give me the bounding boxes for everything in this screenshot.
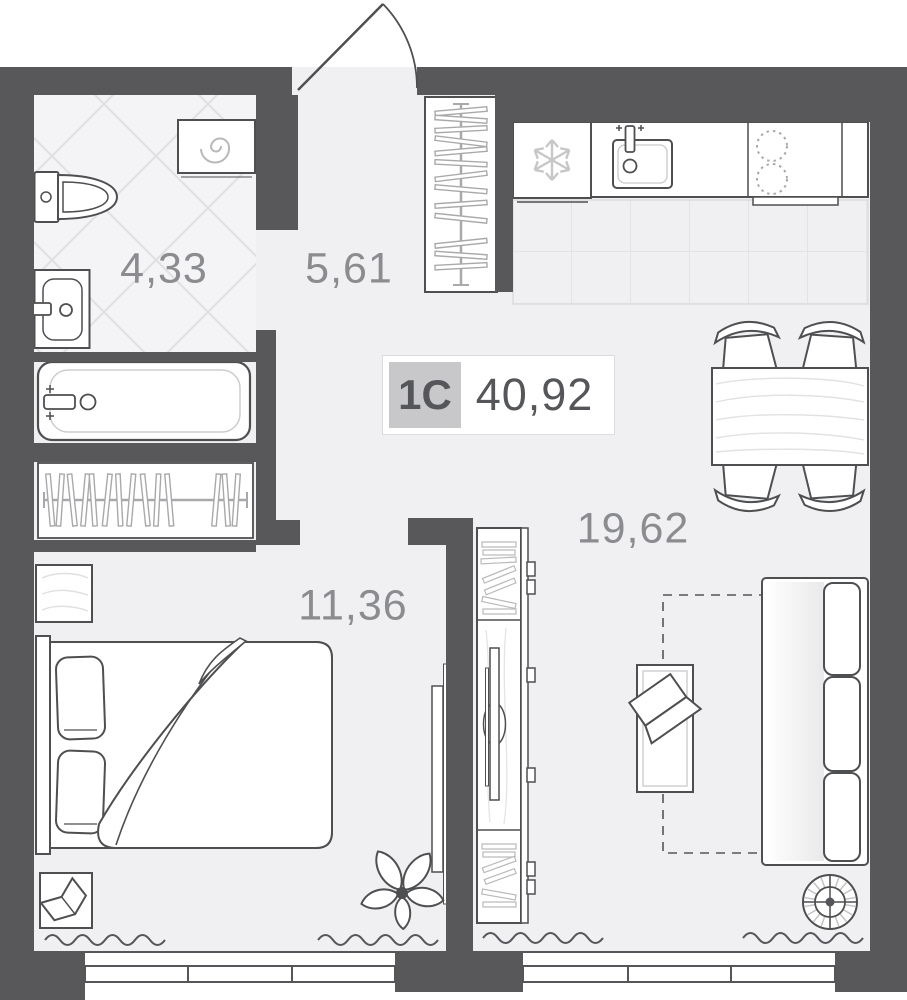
living-window xyxy=(523,966,835,982)
area-label-bedroom: 11,36 xyxy=(298,582,407,631)
unit-type-badge: 1C xyxy=(389,362,461,428)
area-label-bathroom: 4,33 xyxy=(120,245,208,294)
wall-bedroom-stub-left xyxy=(256,520,300,545)
total-area-value: 40,92 xyxy=(461,362,608,428)
wall-bottom-left xyxy=(0,951,85,1000)
pillow xyxy=(56,656,106,740)
bedroom-window xyxy=(85,966,395,982)
bedroom-tv xyxy=(432,664,447,904)
wall-bedroom-stub-right xyxy=(408,518,473,545)
entry-threshold xyxy=(292,67,417,95)
wall-wardrobe-separator xyxy=(34,443,256,462)
kitchen-tiles xyxy=(513,200,868,304)
wall-top-left xyxy=(0,67,292,95)
hallway-wardrobe xyxy=(425,97,497,292)
dining-table xyxy=(712,368,868,465)
kitchen-counter xyxy=(513,122,868,205)
washing-machine xyxy=(178,120,255,177)
coffee-table xyxy=(625,665,701,792)
stove-ledge xyxy=(753,197,838,205)
floor-plan: 4,33 5,61 11,36 19,62 1C 40,92 xyxy=(0,0,907,1000)
bathroom-sink xyxy=(27,270,90,348)
wall-hall-kitchen-stub xyxy=(495,95,513,292)
bathtub xyxy=(38,362,250,440)
area-label-hallway: 5,61 xyxy=(305,245,393,294)
wall-bathroom-upper xyxy=(256,95,298,230)
sofa xyxy=(762,578,868,865)
book-table xyxy=(40,873,92,928)
back-cushion xyxy=(824,677,860,771)
wall-bathtub-separator xyxy=(34,352,256,362)
floor-lamp xyxy=(803,875,857,929)
bed xyxy=(36,636,332,854)
back-cushion xyxy=(824,583,860,675)
shelf-unit xyxy=(477,528,535,923)
wall-bottom-right xyxy=(835,951,907,992)
wall-top-kitchen xyxy=(513,67,907,122)
bedroom-wardrobe xyxy=(38,463,253,538)
floor-plan-drawing xyxy=(0,0,907,1000)
wall-top-mid xyxy=(417,67,513,95)
wall-right xyxy=(870,122,907,951)
area-label-living-kitchen: 19,62 xyxy=(577,505,690,554)
wall-partition xyxy=(446,544,473,951)
headboard xyxy=(36,636,50,854)
wall-wardrobe-bottom xyxy=(34,540,256,552)
pillow xyxy=(56,750,106,834)
wall-bottom-pier xyxy=(395,951,523,992)
nightstand xyxy=(36,565,92,622)
wall-left xyxy=(0,95,34,951)
plan-badge: 1C 40,92 xyxy=(382,355,615,435)
wall-bathroom-lower xyxy=(256,330,276,523)
back-cushion xyxy=(824,773,860,861)
